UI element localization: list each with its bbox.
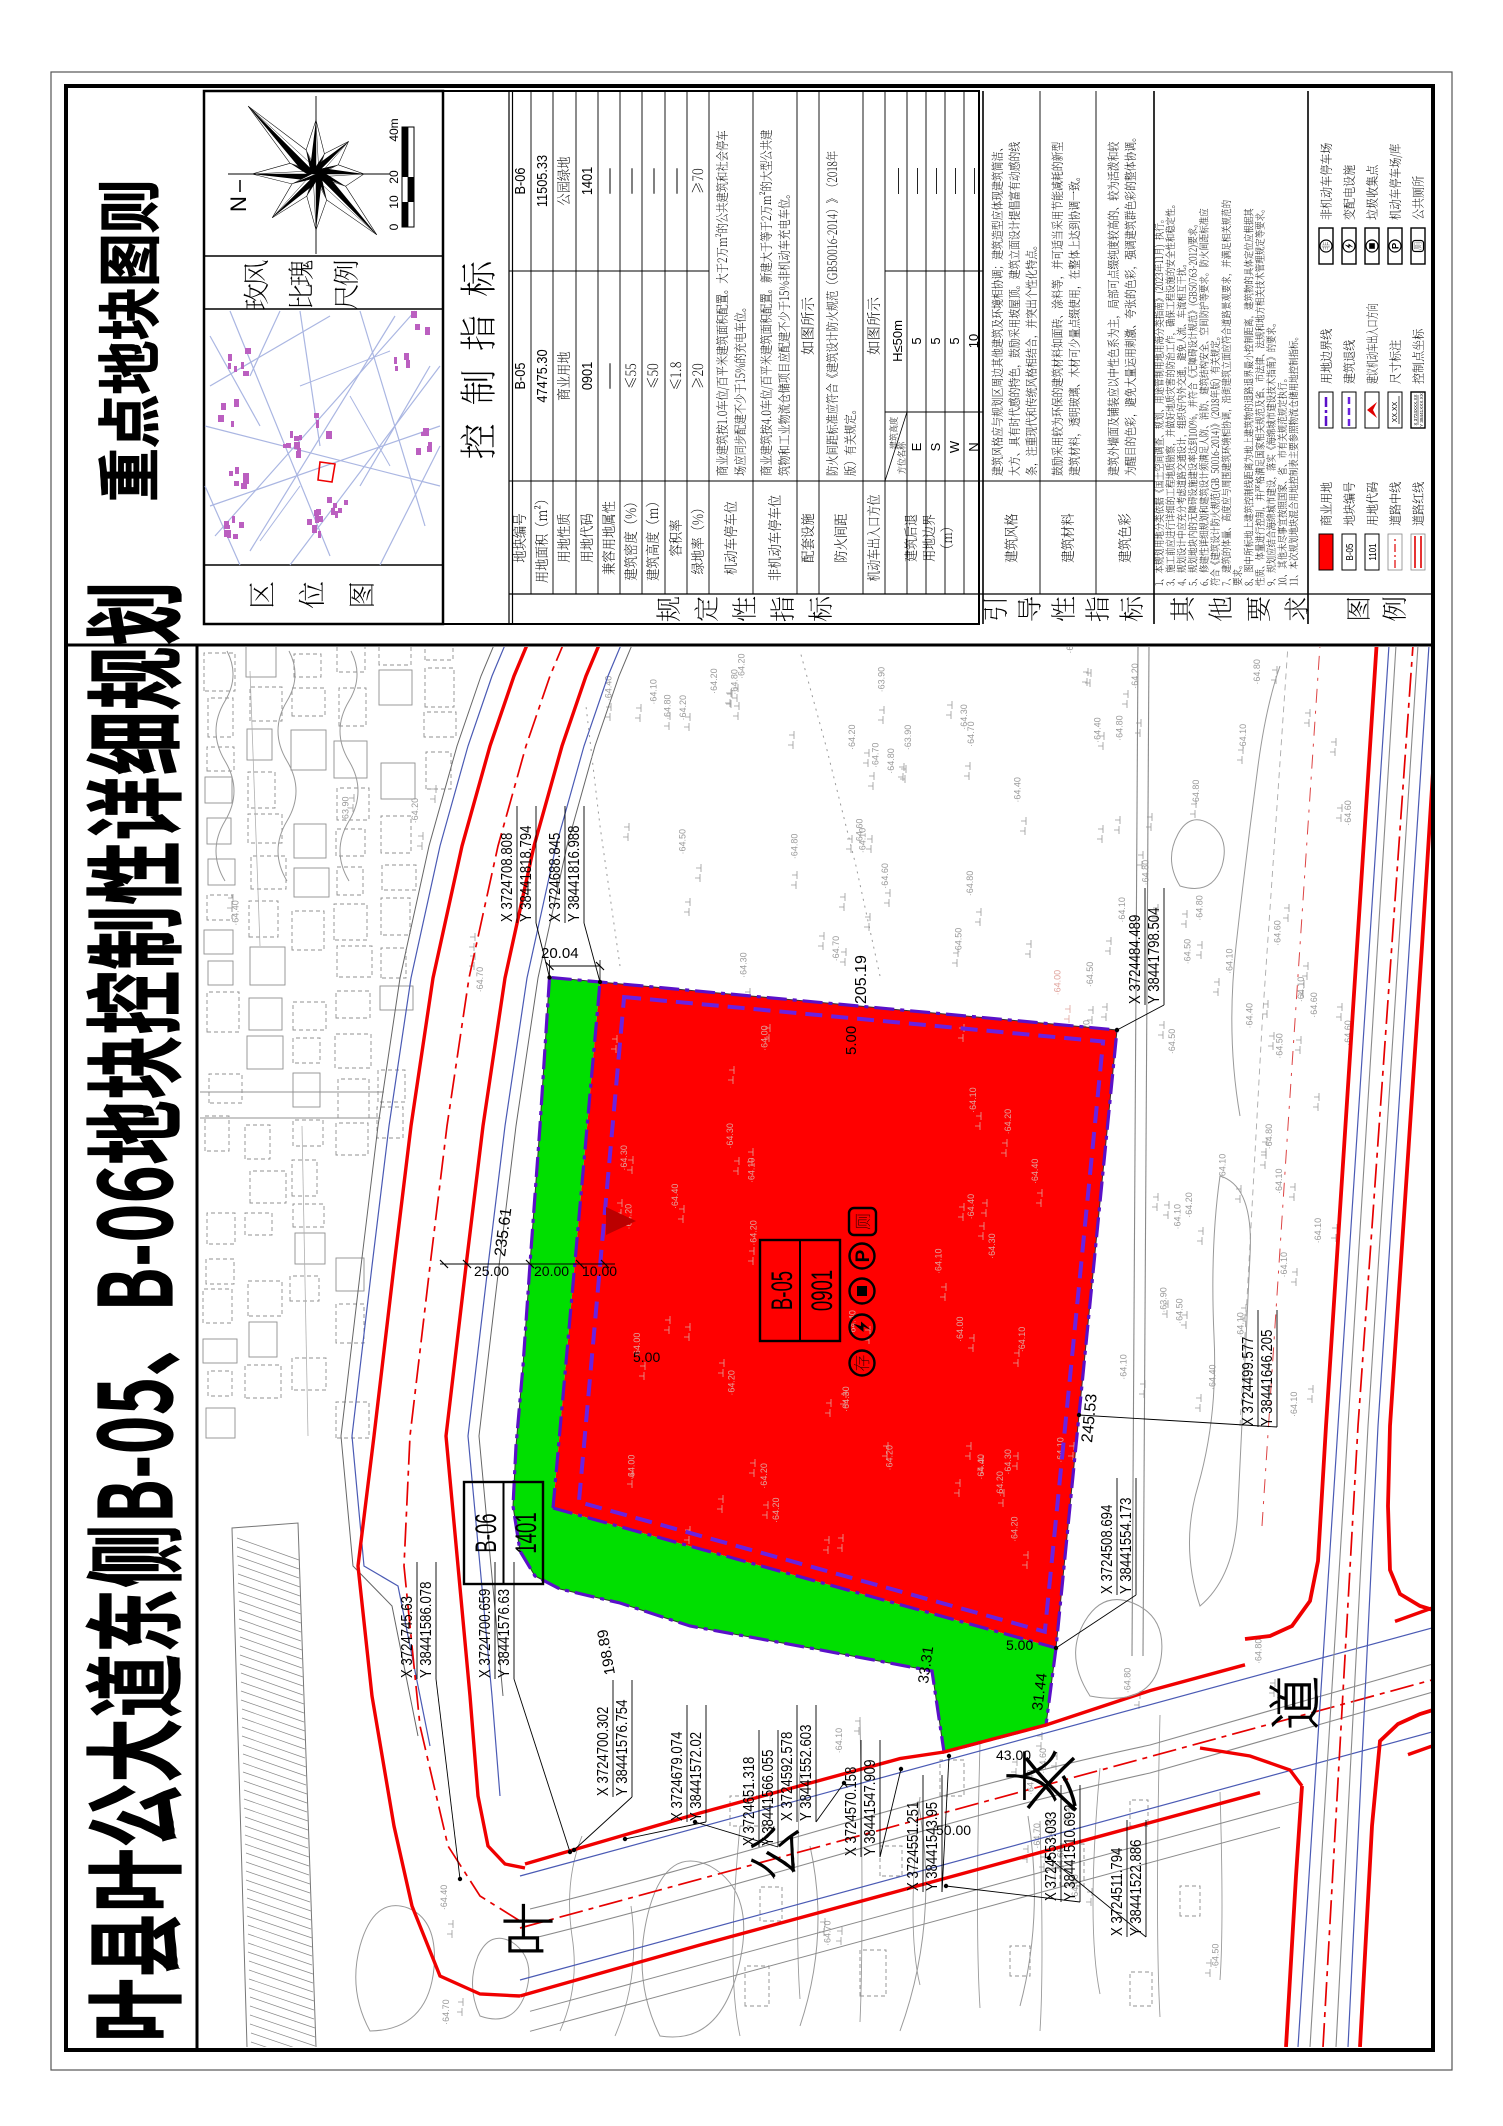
svg-text:X 3724708.808: X 3724708.808 <box>499 833 516 922</box>
svg-text:·64.40: ·64.40 <box>439 1885 449 1911</box>
svg-text:E: E <box>909 442 924 451</box>
svg-text:·64.00: ·64.00 <box>1052 970 1062 996</box>
svg-text:W: W <box>947 440 962 453</box>
svg-text:Y 38441818.794: Y 38441818.794 <box>518 826 535 922</box>
svg-text:Y 38441566.055: Y 38441566.055 <box>760 1750 777 1846</box>
svg-text:·64.40: ·64.40 <box>966 1194 976 1220</box>
svg-text:·64.10: ·64.10 <box>649 679 659 705</box>
svg-text:40m: 40m <box>387 118 401 141</box>
svg-text:·64.10: ·64.10 <box>1279 1252 1289 1278</box>
svg-text:B-06: B-06 <box>512 168 528 195</box>
svg-text:1401: 1401 <box>510 1512 544 1553</box>
svg-text:——: —— <box>645 168 661 194</box>
svg-text:0901: 0901 <box>579 362 595 390</box>
svg-text:·64.10: ·64.10 <box>1017 1327 1027 1353</box>
svg-text:·64.20: ·64.20 <box>759 1463 769 1489</box>
svg-text:·64.40: ·64.40 <box>1012 777 1022 803</box>
svg-text:·64.40: ·64.40 <box>1208 1364 1218 1390</box>
svg-text:1101: 1101 <box>1367 543 1378 560</box>
svg-text:·64.30: ·64.30 <box>619 1145 629 1171</box>
svg-text:P: P <box>853 1249 874 1262</box>
svg-text:——: —— <box>668 168 684 194</box>
svg-text:——: —— <box>947 168 962 194</box>
svg-text:Y 38441510.692: Y 38441510.692 <box>1062 1805 1079 1901</box>
svg-text:X 3724651.318: X 3724651.318 <box>741 1757 758 1846</box>
svg-text:·64.10: ·64.10 <box>1117 897 1127 923</box>
svg-text:·63.90: ·63.90 <box>341 797 351 823</box>
svg-text:·64.80: ·64.80 <box>1254 1639 1264 1665</box>
svg-text:·64.70: ·64.70 <box>1032 1823 1042 1849</box>
svg-text:·64.10: ·64.10 <box>1173 1204 1183 1230</box>
svg-text:——: —— <box>890 168 905 194</box>
svg-text:5.00: 5.00 <box>843 1026 860 1055</box>
svg-text:·64.70: ·64.70 <box>823 1921 833 1947</box>
svg-text:·64.80: ·64.80 <box>1252 659 1262 685</box>
svg-text:·64.50: ·64.50 <box>1274 1033 1284 1059</box>
svg-text:·64.50: ·64.50 <box>1211 1944 1221 1970</box>
svg-text:P: P <box>1391 242 1402 249</box>
svg-text:·64.80: ·64.80 <box>1122 1668 1132 1694</box>
svg-text:B-05: B-05 <box>512 362 528 389</box>
svg-text:43.00: 43.00 <box>996 1747 1031 1763</box>
svg-text:Y 38441552.603: Y 38441552.603 <box>798 1725 815 1821</box>
svg-text:Y 38441XXX.XX: Y 38441XXX.XX <box>1419 393 1424 427</box>
svg-text:——: —— <box>601 363 617 389</box>
svg-text:·64.10: ·64.10 <box>1289 1392 1299 1418</box>
svg-text:X 3724XXX.XX: X 3724XXX.XX <box>1413 394 1418 425</box>
svg-text:·64.10: ·64.10 <box>968 1087 978 1113</box>
svg-text:·64.50: ·64.50 <box>1174 1298 1184 1324</box>
svg-text:·64.60: ·64.60 <box>1309 992 1319 1018</box>
svg-text:·64.40: ·64.40 <box>976 1454 986 1480</box>
svg-text:·64.60: ·64.60 <box>1343 800 1353 826</box>
svg-text:·64.10: ·64.10 <box>857 828 867 854</box>
svg-text:·64.20: ·64.20 <box>1003 1109 1013 1135</box>
svg-text:X 3724700.302: X 3724700.302 <box>595 1707 612 1796</box>
svg-text:·64.40: ·64.40 <box>231 900 241 926</box>
svg-text:·64.10: ·64.10 <box>1313 1218 1323 1244</box>
svg-text:·64.20: ·64.20 <box>749 1220 759 1246</box>
svg-text:·64.80: ·64.80 <box>662 694 672 720</box>
svg-text:Y 38441798.504: Y 38441798.504 <box>1146 908 1163 1004</box>
svg-text:·64.70: ·64.70 <box>831 936 841 962</box>
svg-text:XX.XX: XX.XX <box>1392 401 1399 422</box>
svg-text:·64.40: ·64.40 <box>847 1310 857 1336</box>
svg-text:·64.30: ·64.30 <box>739 952 749 978</box>
svg-text:20.04: 20.04 <box>541 945 579 962</box>
svg-text:Y 38441554.173: Y 38441554.173 <box>1118 1498 1135 1594</box>
svg-text:·64.40: ·64.40 <box>1245 1003 1255 1029</box>
svg-text:·64.10: ·64.10 <box>1225 948 1235 974</box>
svg-text:·64.50: ·64.50 <box>1167 1029 1177 1055</box>
svg-text:·64.80: ·64.80 <box>790 834 800 860</box>
svg-text:·64.80: ·64.80 <box>886 748 896 774</box>
svg-text:·64.80: ·64.80 <box>1191 780 1201 806</box>
svg-text:B-05: B-05 <box>1344 544 1355 561</box>
svg-text:·64.00: ·64.00 <box>955 1317 965 1343</box>
svg-text:X 3724592.578: X 3724592.578 <box>779 1732 796 1821</box>
svg-text:·64.40: ·64.40 <box>1093 717 1103 743</box>
svg-text:·64.70: ·64.70 <box>870 743 880 769</box>
svg-text:——: —— <box>966 168 981 194</box>
svg-text:Y 38441576.63: Y 38441576.63 <box>496 1589 513 1678</box>
svg-text:Y 38441543.95: Y 38441543.95 <box>924 1802 941 1891</box>
svg-text:——: —— <box>909 168 924 194</box>
svg-text:·64.50: ·64.50 <box>953 928 963 954</box>
svg-text:X 3724551.251: X 3724551.251 <box>905 1802 922 1891</box>
svg-text:·64.20: ·64.20 <box>410 798 420 824</box>
svg-text:10.00: 10.00 <box>582 1263 617 1279</box>
svg-text:·64.60: ·64.60 <box>880 863 890 889</box>
svg-text:5: 5 <box>928 337 943 344</box>
svg-text:X 3724499.577: X 3724499.577 <box>1240 1337 1257 1426</box>
svg-text:——: —— <box>601 168 617 194</box>
svg-text:205.19: 205.19 <box>853 955 870 1004</box>
svg-text:·63.90: ·63.90 <box>903 725 913 751</box>
svg-text:N: N <box>226 196 251 212</box>
svg-text:0901: 0901 <box>806 1270 840 1311</box>
svg-text:Y 38441576.754: Y 38441576.754 <box>614 1700 631 1796</box>
svg-text:·64.40: ·64.40 <box>670 1184 680 1210</box>
svg-text:·63.90: ·63.90 <box>876 667 886 693</box>
svg-text:Y 38441522.886: Y 38441522.886 <box>1128 1840 1145 1936</box>
svg-text:B-06: B-06 <box>470 1513 504 1552</box>
svg-text:Y 38441547.909: Y 38441547.909 <box>862 1760 879 1856</box>
svg-text:Y 38441586.078: Y 38441586.078 <box>418 1582 435 1678</box>
svg-text:5.00: 5.00 <box>1006 1637 1033 1653</box>
svg-text:Y 38441572.02: Y 38441572.02 <box>688 1732 705 1821</box>
svg-text:·64.50: ·64.50 <box>1085 962 1095 988</box>
svg-text:·64.20: ·64.20 <box>885 1445 895 1471</box>
svg-text:·64.10: ·64.10 <box>746 1158 756 1184</box>
svg-text:·64.80: ·64.80 <box>1115 715 1125 741</box>
svg-text:·64.30: ·64.30 <box>725 1123 735 1149</box>
svg-text:·64.10: ·64.10 <box>933 1249 943 1275</box>
svg-text:·64.40: ·64.40 <box>1030 1159 1040 1185</box>
svg-text:B-05: B-05 <box>766 1271 800 1310</box>
svg-text:X 3724508.694: X 3724508.694 <box>1099 1505 1116 1594</box>
svg-text:5.00: 5.00 <box>633 1349 660 1365</box>
svg-text:——: —— <box>623 168 639 194</box>
svg-text:Y 38441816.988: Y 38441816.988 <box>566 826 583 922</box>
svg-text:·64.20: ·64.20 <box>678 695 688 721</box>
svg-text:Y 38441646.205: Y 38441646.205 <box>1259 1330 1276 1426</box>
svg-text:X 3724553.033: X 3724553.033 <box>1043 1812 1060 1901</box>
svg-text:X 3724484.489: X 3724484.489 <box>1127 915 1144 1004</box>
svg-text:X 3724745.63: X 3724745.63 <box>399 1596 416 1678</box>
svg-text:47475.30: 47475.30 <box>534 349 550 403</box>
svg-text:·64.10: ·64.10 <box>1218 1154 1228 1180</box>
svg-text:·64.10: ·64.10 <box>1119 1354 1129 1380</box>
svg-text:20.00: 20.00 <box>534 1263 569 1279</box>
svg-text:·64.00: ·64.00 <box>760 1025 770 1051</box>
svg-text:·64.50: ·64.50 <box>677 829 687 855</box>
svg-text:·64.00: ·64.00 <box>627 1455 637 1481</box>
svg-text:S: S <box>928 442 943 451</box>
svg-text:·64.20: ·64.20 <box>709 668 719 694</box>
svg-text:·64.80: ·64.80 <box>1195 895 1205 921</box>
svg-text:·64.70: ·64.70 <box>441 1999 451 2025</box>
svg-text:·64.30: ·64.30 <box>841 1386 851 1412</box>
svg-text:1401: 1401 <box>579 167 595 195</box>
svg-text:X 3724570.158: X 3724570.158 <box>843 1767 860 1856</box>
svg-text:25.00: 25.00 <box>474 1263 509 1279</box>
svg-text:X 3724700.659: X 3724700.659 <box>477 1589 494 1678</box>
svg-text:·64.10: ·64.10 <box>834 1728 844 1754</box>
svg-text:·63.90: ·63.90 <box>1158 1287 1168 1313</box>
svg-text:X 3724679.074: X 3724679.074 <box>669 1732 686 1821</box>
svg-text:·64.60: ·64.60 <box>1272 920 1282 946</box>
svg-text:·64.30: ·64.30 <box>959 704 969 730</box>
svg-text:20: 20 <box>387 170 401 184</box>
svg-text:10: 10 <box>966 334 981 348</box>
svg-text:H≤50m: H≤50m <box>890 320 905 362</box>
svg-text:·64.80: ·64.80 <box>1140 860 1150 886</box>
svg-text:·64.80: ·64.80 <box>1264 1124 1274 1150</box>
svg-text:·64.30: ·64.30 <box>1003 1449 1013 1475</box>
svg-text:·64.20: ·64.20 <box>726 1370 736 1396</box>
svg-text:·64.20: ·64.20 <box>1010 1516 1020 1542</box>
svg-text:·64.20: ·64.20 <box>1184 1192 1194 1218</box>
svg-text:·64.20: ·64.20 <box>771 1497 781 1523</box>
svg-text:·64.20: ·64.20 <box>847 724 857 750</box>
svg-text:N: N <box>966 442 981 451</box>
svg-text:·64.30: ·64.30 <box>987 1233 997 1259</box>
svg-text:X 3724688.845: X 3724688.845 <box>547 833 564 922</box>
svg-text:X 3724511.794: X 3724511.794 <box>1109 1848 1126 1936</box>
svg-text:·64.20: ·64.20 <box>737 653 747 679</box>
svg-text:0: 0 <box>387 223 401 230</box>
svg-text:·64.80: ·64.80 <box>965 871 975 897</box>
svg-text:10: 10 <box>387 195 401 209</box>
svg-text:·64.10: ·64.10 <box>1274 1169 1284 1195</box>
svg-text:·64.70: ·64.70 <box>475 967 485 993</box>
svg-text:5: 5 <box>909 337 924 344</box>
svg-text:5: 5 <box>947 337 962 344</box>
svg-text:·64.50: ·64.50 <box>1182 939 1192 965</box>
svg-text:·64.10: ·64.10 <box>1238 724 1248 750</box>
svg-text:——: —— <box>928 168 943 194</box>
svg-text:11505.33: 11505.33 <box>534 155 550 207</box>
svg-text:·64.10: ·64.10 <box>1235 1312 1245 1338</box>
